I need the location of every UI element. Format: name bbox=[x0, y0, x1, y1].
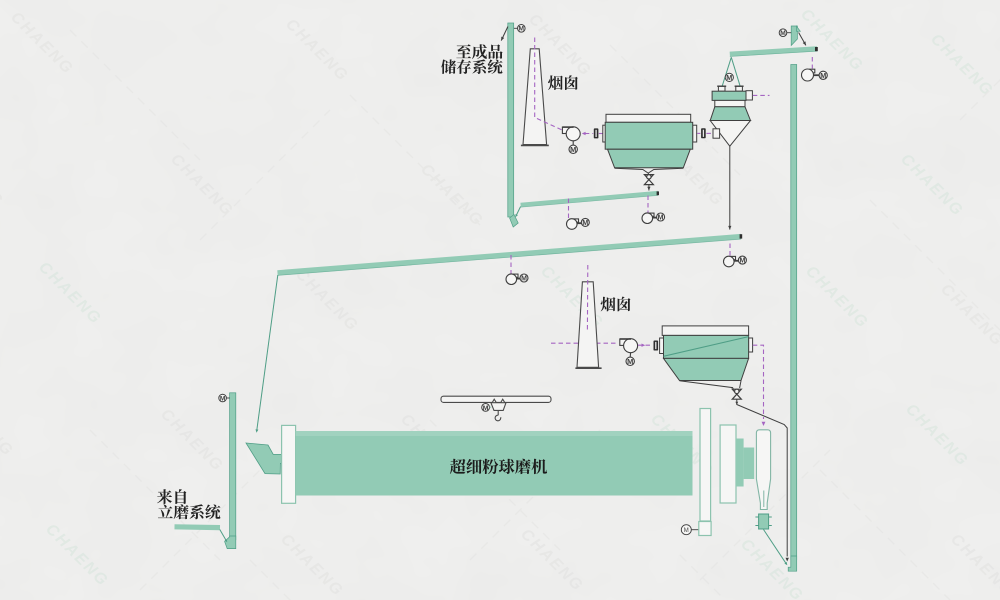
svg-text:M: M bbox=[582, 220, 588, 227]
svg-text:M: M bbox=[739, 258, 745, 265]
svg-text:M: M bbox=[220, 395, 226, 402]
svg-text:M: M bbox=[483, 405, 489, 412]
svg-text:M: M bbox=[780, 30, 786, 37]
svg-text:M: M bbox=[519, 26, 525, 33]
svg-text:M: M bbox=[521, 276, 527, 283]
svg-text:M: M bbox=[627, 357, 633, 366]
svg-text:M: M bbox=[726, 73, 732, 82]
svg-text:M: M bbox=[658, 215, 664, 222]
svg-text:M: M bbox=[820, 71, 826, 80]
svg-text:M: M bbox=[570, 145, 576, 154]
svg-text:M: M bbox=[684, 528, 689, 534]
